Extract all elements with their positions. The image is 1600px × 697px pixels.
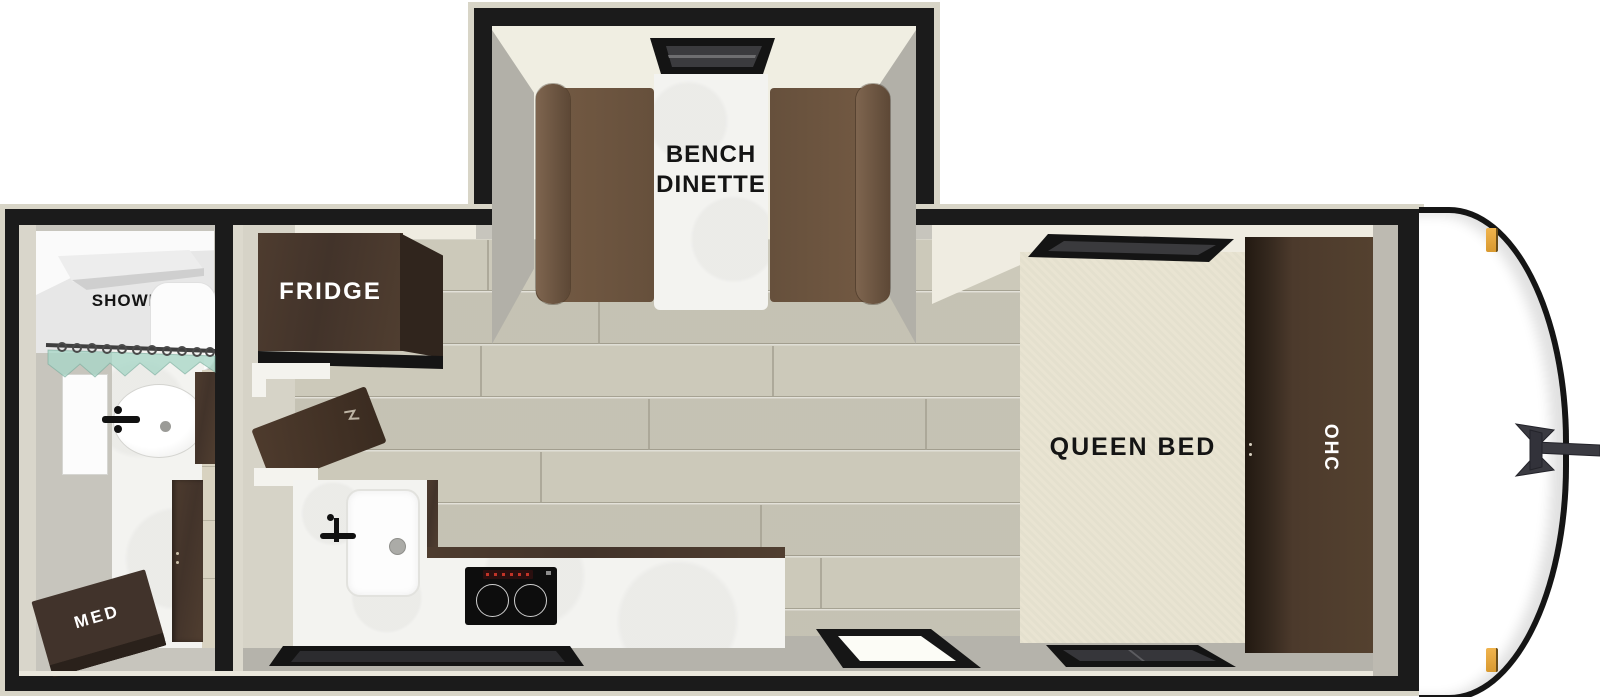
entry-door xyxy=(816,629,981,668)
dinette-window xyxy=(650,38,775,74)
bedroom-window-top xyxy=(1028,234,1234,262)
bedroom-window-bottom xyxy=(1046,645,1236,667)
rv-floorplan: SHOWER MED xyxy=(0,0,1600,697)
curtain-rod xyxy=(46,345,215,351)
overlay-graphics xyxy=(0,0,1600,697)
kitchen-window xyxy=(269,646,584,666)
hitch xyxy=(1516,424,1600,476)
shower-curtain xyxy=(46,343,215,377)
